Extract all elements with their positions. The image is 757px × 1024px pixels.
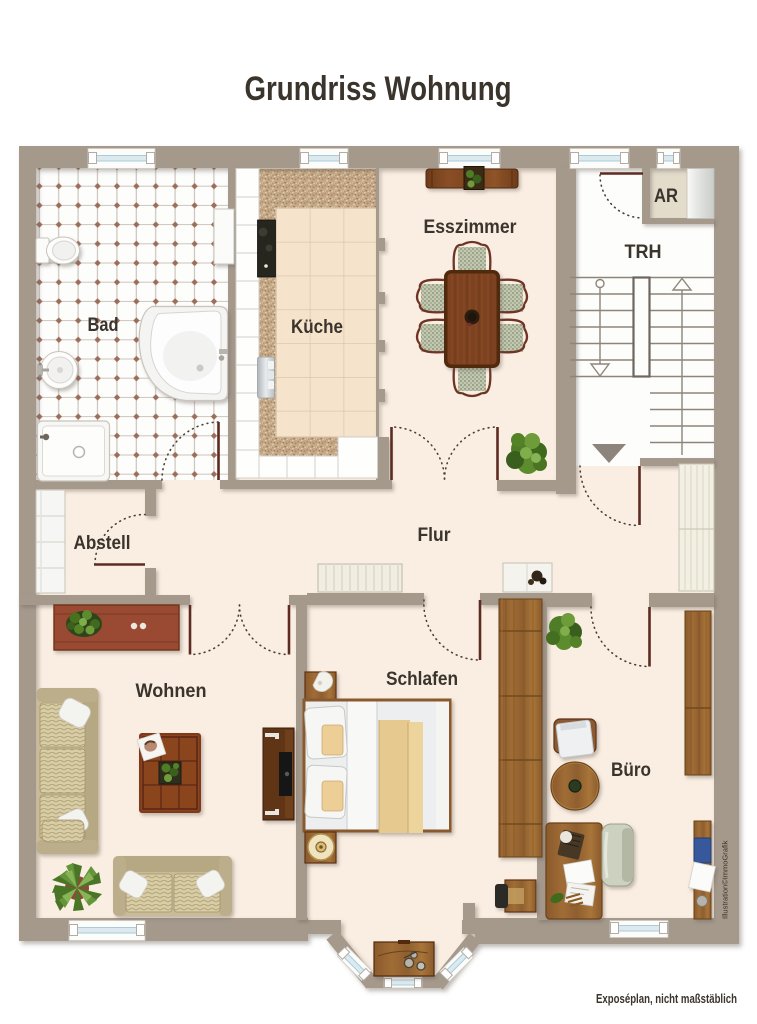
svg-text:Abstell: Abstell (74, 532, 131, 554)
svg-text:Wohnen: Wohnen (136, 680, 207, 702)
svg-text:Flur: Flur (418, 524, 451, 546)
svg-text:Esszimmer: Esszimmer (424, 216, 517, 238)
svg-text:Schlafen: Schlafen (386, 668, 458, 690)
svg-text:Küche: Küche (291, 316, 343, 338)
svg-text:Illustration©ImmoGrafik: Illustration©ImmoGrafik (721, 840, 730, 919)
svg-text:Exposéplan, nicht maßstäblich: Exposéplan, nicht maßstäblich (596, 991, 737, 1006)
svg-text:Grundriss Wohnung: Grundriss Wohnung (245, 70, 512, 108)
svg-text:AR: AR (654, 185, 678, 207)
svg-text:Bad: Bad (88, 314, 119, 336)
svg-text:Büro: Büro (611, 759, 651, 781)
svg-text:TRH: TRH (625, 241, 662, 263)
